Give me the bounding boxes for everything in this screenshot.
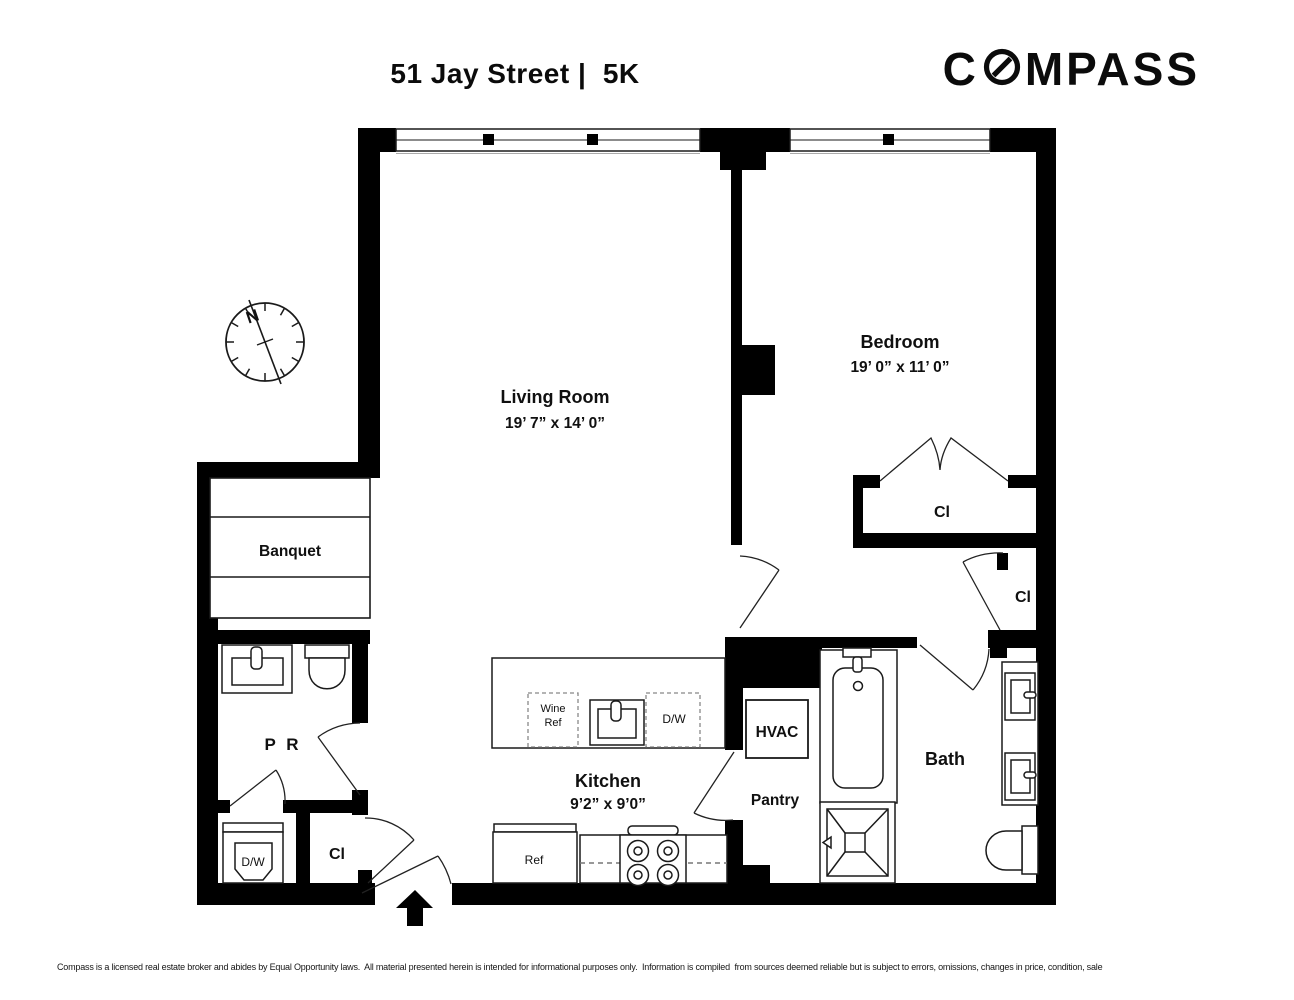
- entry-door: [362, 856, 451, 893]
- living-room-dims: 19’ 7” x 14’ 0”: [505, 415, 605, 432]
- bedroom-dims: 19’ 0” x 11’ 0”: [850, 359, 949, 376]
- bedroom-name: Bedroom: [860, 332, 939, 352]
- powder-room-label: P R: [264, 735, 301, 754]
- washer-dryer-label: D/W: [241, 855, 265, 869]
- bedroom-closet-label: Cl: [934, 504, 950, 521]
- windows: [396, 129, 990, 154]
- bathtub: [820, 648, 897, 803]
- pr-toilet: [305, 645, 349, 689]
- powder-room-door: [318, 723, 360, 795]
- bath-toilet: [986, 826, 1038, 874]
- living-room-name: Living Room: [501, 387, 610, 407]
- island-sink: [590, 700, 644, 745]
- pantry-label: Pantry: [751, 792, 800, 809]
- compass-rose: N: [226, 300, 304, 384]
- double-vanity: [1002, 662, 1038, 805]
- floor-plan-page: 51 Jay Street | 5K CMPASS: [0, 0, 1294, 1000]
- bath-door: [920, 645, 989, 690]
- floor-plan-drawing: N: [0, 0, 1294, 1000]
- wine-ref-label-1: Wine: [540, 703, 565, 715]
- north-label: N: [244, 306, 262, 328]
- washer-dryer: [223, 823, 283, 883]
- banquet-label: Banquet: [259, 543, 321, 560]
- window-mullion: [883, 134, 894, 145]
- window-mullion: [483, 134, 494, 145]
- window-mullion: [587, 134, 598, 145]
- stove: [620, 826, 686, 886]
- kitchen-name: Kitchen: [575, 771, 641, 791]
- bedroom-closet-doors: [880, 438, 1008, 481]
- refrigerator-label: Ref: [525, 853, 544, 867]
- kitchen-dims: 9’2” x 9’0”: [570, 796, 646, 813]
- bedroom-door: [740, 556, 779, 628]
- disclaimer: Compass is a licensed real estate broker…: [57, 934, 1237, 1000]
- entry-closet-label: Cl: [329, 846, 345, 863]
- hall-closet-label: Cl: [1015, 589, 1031, 606]
- pantry-door: [694, 752, 734, 820]
- entry-arrow-icon: [396, 890, 433, 926]
- bath-label: Bath: [925, 749, 965, 769]
- pr-sink: [222, 645, 292, 693]
- powder-room-inner-door: [230, 770, 285, 806]
- wine-ref-label-2: Ref: [544, 717, 562, 729]
- shower: [820, 802, 895, 883]
- hvac-label: HVAC: [756, 724, 799, 741]
- island-dishwasher-label: D/W: [662, 712, 686, 726]
- disclaimer-line-1: Compass is a licensed real estate broker…: [57, 961, 1237, 975]
- entry-closet-door: [365, 818, 414, 883]
